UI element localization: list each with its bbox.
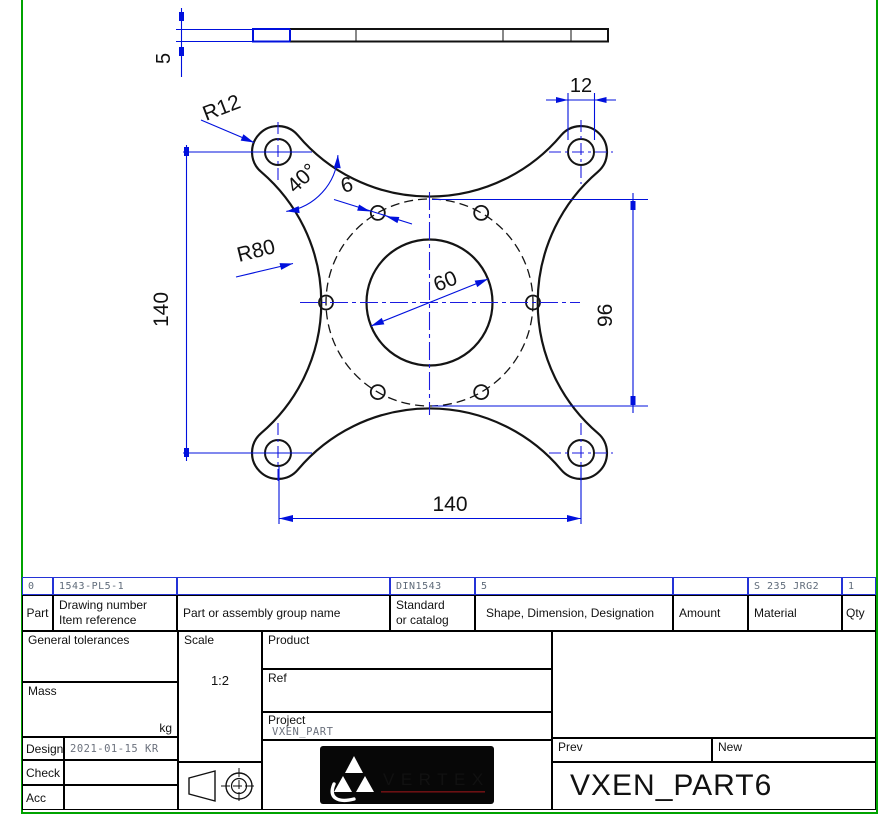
mass-unit: kg [159, 721, 172, 735]
dim-text-angle[interactable]: 40° [283, 159, 322, 197]
dim-terminator [631, 201, 636, 210]
header-standard: Standard or catalog [390, 595, 475, 631]
dim-text-bolt-circle[interactable]: 96 [594, 304, 617, 327]
dim-text-corner-radius[interactable]: R12 [200, 90, 244, 125]
part-name-cell: VXEN_PART6 [552, 762, 876, 810]
project-cell: Project VXEN_PART [262, 712, 552, 740]
item-row-part-no: 0 [22, 577, 53, 595]
mass-cell: Mass kg [22, 682, 178, 737]
scale-value: 1:2 [211, 673, 229, 688]
bolt-hole[interactable] [474, 385, 488, 399]
dim-terminator [631, 396, 636, 405]
design-value-cell: 2021-01-15 KR [64, 737, 178, 760]
check-label-cell: Check [22, 760, 64, 785]
project-value: VXEN_PART [268, 727, 333, 739]
dim-terminator [184, 147, 189, 156]
side-view[interactable] [253, 29, 608, 42]
header-shape: Shape, Dimension, Designation [475, 595, 673, 631]
arrowhead [567, 515, 581, 522]
ref-cell: Ref [262, 669, 552, 712]
item-row-drawing-number: 1543-PL5-1 [53, 577, 177, 595]
item-row-group-name [177, 577, 390, 595]
dim-text-hole-diameter[interactable]: 12 [570, 75, 592, 97]
dim-terminator [179, 47, 184, 56]
item-row-qty: 1 [842, 577, 876, 595]
dim-text-thickness[interactable]: 5 [153, 53, 175, 64]
centerlines[interactable] [278, 120, 613, 483]
title-block: 0 1543-PL5-1 DIN1543 5 S 235 JRG2 1 Part… [22, 577, 876, 810]
arrowhead [595, 97, 607, 103]
arrowhead [279, 515, 293, 522]
dim-width[interactable]: 140 [279, 466, 581, 524]
projection-symbol-cell [178, 762, 262, 810]
arrowhead [357, 205, 371, 215]
item-row-material: S 235 JRG2 [748, 577, 842, 595]
dim-edge-radius[interactable]: R80 [235, 235, 293, 277]
item-row-amount [673, 577, 748, 595]
general-tolerances-cell: General tolerances [22, 631, 178, 682]
header-material: Material [748, 595, 842, 631]
check-value-cell [64, 760, 178, 785]
bolt-hole[interactable] [474, 206, 488, 220]
header-part: Part [22, 595, 53, 631]
new-cell: New [712, 738, 876, 762]
cad-sheet: 5 12 [0, 0, 894, 822]
part-name: VXEN_PART6 [558, 769, 772, 803]
acc-value-cell [64, 785, 178, 810]
header-qty: Qty [842, 595, 876, 631]
design-label-cell: Design [22, 737, 64, 760]
header-amount: Amount [673, 595, 748, 631]
product-cell: Product [262, 631, 552, 669]
acc-label-cell: Acc [22, 785, 64, 810]
dim-text-edge-radius[interactable]: R80 [235, 235, 278, 267]
dim-text-width[interactable]: 140 [432, 493, 467, 516]
dim-corner-radius[interactable]: R12 [200, 90, 254, 142]
logo-text: VERTEX [383, 770, 490, 789]
first-angle-projection-icon [179, 763, 261, 809]
dim-terminator [184, 448, 189, 457]
logo-cell: VERTEX [262, 740, 552, 810]
arrowhead [385, 213, 399, 223]
item-row-standard: DIN1543 [390, 577, 475, 595]
vertex-logo: VERTEX [320, 746, 494, 804]
prev-cell: Prev [552, 738, 712, 762]
dim-text-height[interactable]: 140 [150, 292, 173, 327]
header-group-name: Part or assembly group name [177, 595, 390, 631]
dim-height[interactable]: 140 [150, 145, 312, 461]
dim-terminator [179, 12, 184, 21]
header-drawing-number: Drawing number Item reference [53, 595, 177, 631]
dim-thickness[interactable]: 5 [153, 8, 252, 77]
scale-cell: Scale 1:2 [178, 631, 262, 762]
notes-cell [552, 631, 876, 738]
item-row-shape: 5 [475, 577, 673, 595]
arrowhead [556, 97, 568, 103]
side-view-plate[interactable] [253, 29, 608, 42]
leader-line[interactable] [334, 200, 412, 225]
dim-text-small-hole[interactable]: 6 [338, 173, 355, 198]
